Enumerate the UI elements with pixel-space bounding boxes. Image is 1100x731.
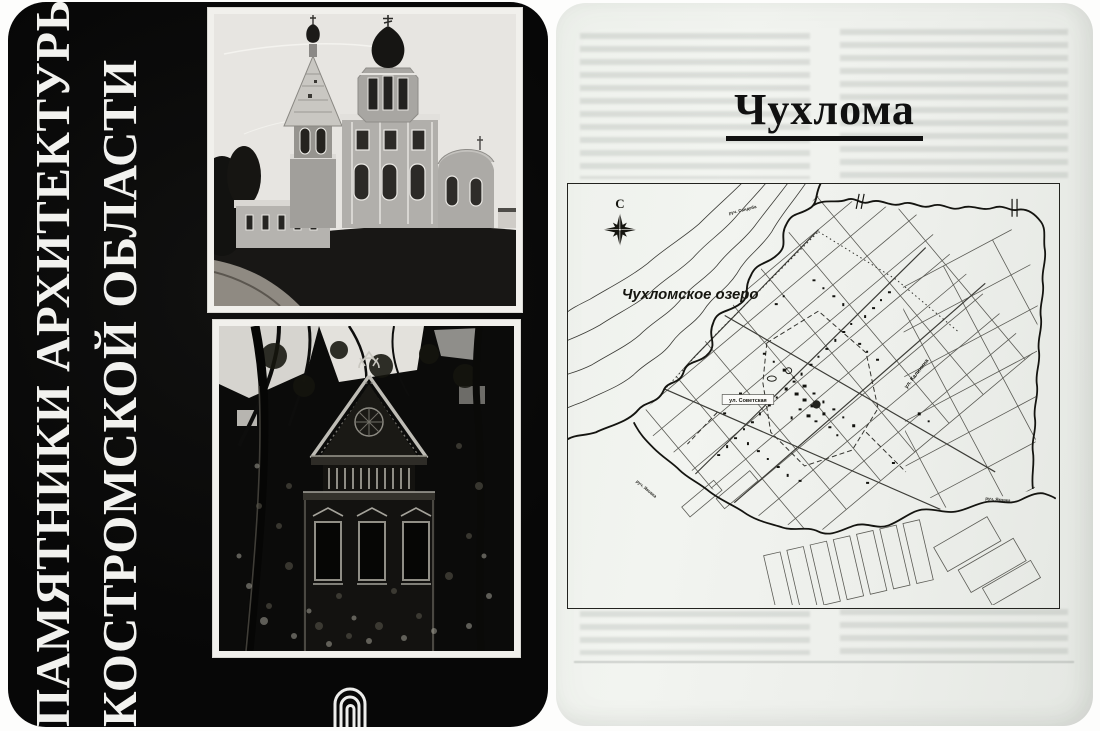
bleed-through-rule xyxy=(574,661,1074,663)
stream-label-southwest: руч. Яковка xyxy=(635,479,658,499)
map-labels: ул. Советская ул. Калинина руч. Сандеба … xyxy=(622,204,1011,503)
book-cover: ПАМЯТНИКИ АРХИТЕКТУРЫ КОСТРОМСКОЙ ОБЛАСТ… xyxy=(8,2,548,727)
south-blocks xyxy=(682,459,1041,605)
page-title-text: Чухлома xyxy=(726,87,923,141)
stream-label-north: руч. Сандеба xyxy=(728,204,757,216)
street-label-sovetskaya: ул. Советская xyxy=(729,398,767,404)
street-grid xyxy=(568,184,1033,605)
terem-photo-illustration xyxy=(219,326,514,651)
cover-title: ПАМЯТНИКИ АРХИТЕКТУРЫ КОСТРОМСКОЙ ОБЛАСТ… xyxy=(20,37,172,727)
compass-rose-icon: С xyxy=(603,197,637,247)
publisher-logo-icon xyxy=(330,683,370,727)
town-map: ул. Советская ул. Калинина руч. Сандеба … xyxy=(568,184,1056,605)
cover-photo-church xyxy=(207,7,523,313)
town-map-frame: ул. Советская ул. Калинина руч. Сандеба … xyxy=(567,183,1060,609)
cover-title-line2: КОСТРОМСКОЙ ОБЛАСТИ xyxy=(87,37,154,727)
buildings-layer xyxy=(717,279,929,484)
bleed-through-text-bottom-left xyxy=(580,611,810,655)
book-spread-scan: ПАМЯТНИКИ АРХИТЕКТУРЫ КОСТРОМСКОЙ ОБЛАСТ… xyxy=(0,0,1100,731)
compass-north-label: С xyxy=(615,197,624,211)
bleed-through-text-bottom-right xyxy=(840,609,1068,659)
lake-label: Чухломское озеро xyxy=(622,287,759,303)
north-stream xyxy=(812,199,1045,489)
south-stream xyxy=(634,422,1056,533)
page-title: Чухлома xyxy=(556,87,1093,141)
main-streets xyxy=(664,230,996,518)
street-grid-east xyxy=(828,230,1056,538)
cover-photo-terem xyxy=(212,319,521,658)
church-photo-illustration xyxy=(214,14,516,306)
cover-title-line1: ПАМЯТНИКИ АРХИТЕКТУРЫ xyxy=(20,37,87,727)
book-page: Чухлома xyxy=(556,3,1093,726)
